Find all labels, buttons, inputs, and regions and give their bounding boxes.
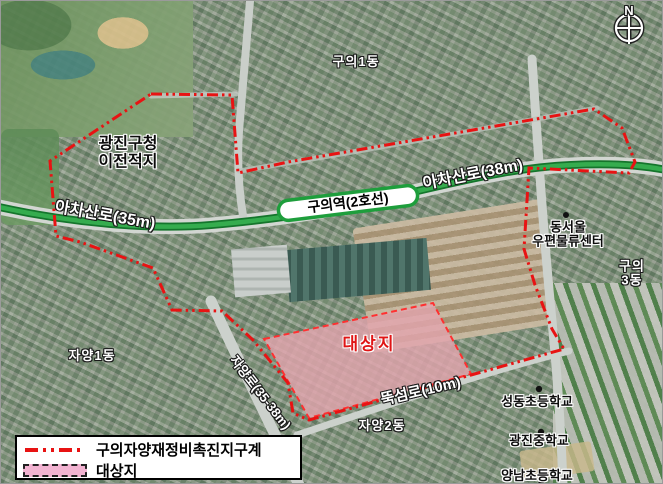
seongdong-school-dot (536, 386, 542, 392)
legend-site-label: 대상지 (96, 460, 137, 481)
site-polygon (264, 303, 471, 418)
place-label-gwangjin-middle: 광진중학교 (509, 434, 569, 448)
place-label-seongdong-elementary: 성동초등학교 (501, 395, 573, 409)
legend-row-boundary: 구의자양재정비촉진지구계 (23, 439, 294, 460)
legend-boundary-label: 구의자양재정비촉진지구계 (96, 439, 262, 460)
district-label-jayang1dong: 자양1동 (68, 349, 115, 363)
site-label: 대상지 (343, 336, 396, 355)
legend-row-site: 대상지 (23, 460, 294, 481)
gwangjin-office-site-label: 광진구청 이전적지 (99, 135, 158, 170)
aerial-map: N 광진구청 이전적지 구의1동 구의3동 자양1동 자양2동 아차산로(35m… (0, 0, 663, 484)
legend: 구의자양재정비촉진지구계 대상지 (15, 435, 302, 480)
place-label-yangnam-elementary: 양남초등학교 (501, 469, 573, 483)
legend-boundary-line-icon (23, 444, 87, 456)
district-label-guui1dong: 구의1동 (332, 55, 379, 69)
district-label-guui3dong: 구의3동 (617, 260, 647, 289)
postal-center-dot (563, 212, 569, 218)
legend-site-swatch-icon (23, 464, 87, 477)
district-label-jayang2dong: 자양2동 (358, 419, 405, 433)
place-label-postal-center: 동서울 우편물류센터 (532, 221, 604, 250)
compass-north-label: N (624, 4, 633, 18)
